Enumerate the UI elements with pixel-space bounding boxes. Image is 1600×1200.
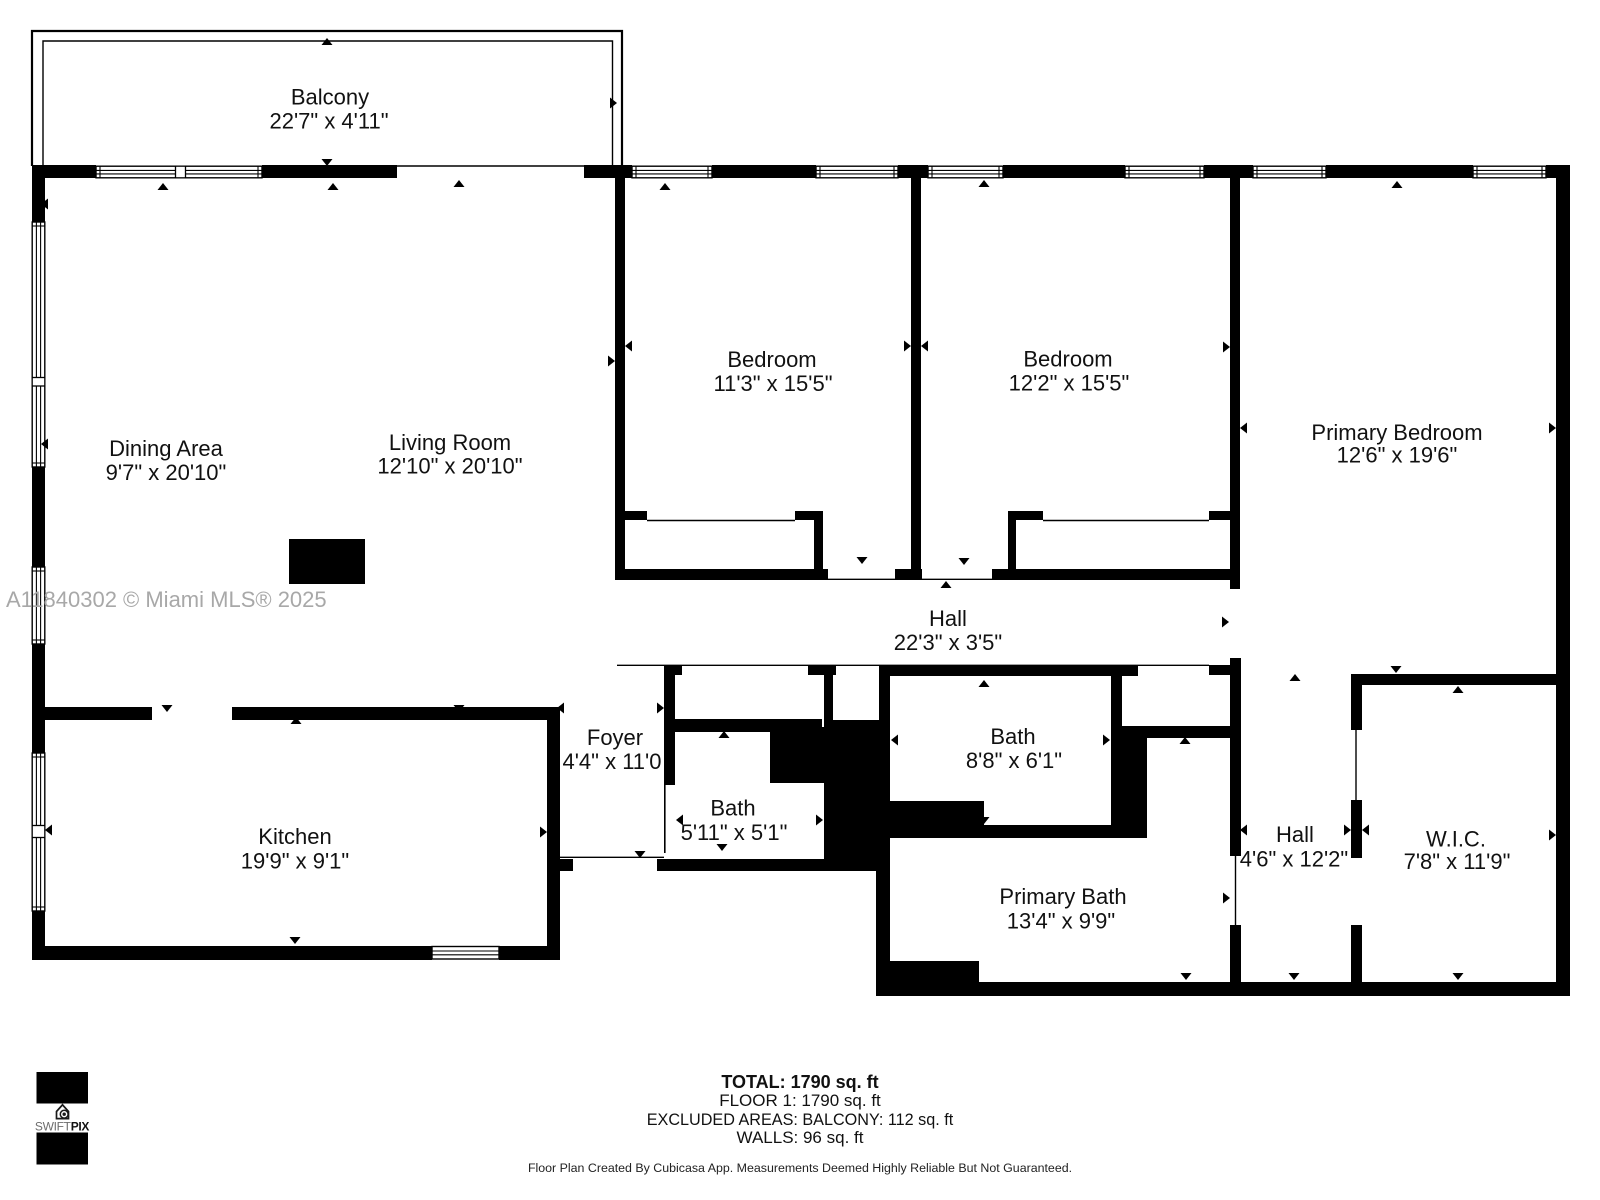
svg-text:TOTAL: 1790 sq. ft: TOTAL: 1790 sq. ft: [721, 1072, 878, 1092]
svg-text:Primary Bedroom: Primary Bedroom: [1311, 420, 1482, 445]
svg-text:Living Room: Living Room: [389, 430, 511, 455]
svg-text:Kitchen: Kitchen: [258, 824, 331, 849]
svg-text:13'4" x 9'9": 13'4" x 9'9": [1007, 909, 1115, 934]
svg-text:7'8" x 11'9": 7'8" x 11'9": [1404, 849, 1511, 874]
svg-text:4'4" x 11'0: 4'4" x 11'0: [563, 749, 662, 774]
svg-text:Foyer: Foyer: [587, 725, 643, 750]
svg-text:12'2" x 15'5": 12'2" x 15'5": [1009, 371, 1130, 396]
svg-text:Bedroom: Bedroom: [1023, 347, 1112, 372]
svg-text:5'11" x 5'1": 5'11" x 5'1": [681, 820, 788, 845]
svg-text:Dining Area: Dining Area: [109, 436, 224, 461]
svg-text:W.I.C.: W.I.C.: [1426, 827, 1486, 852]
svg-text:22'3" x 3'5": 22'3" x 3'5": [894, 630, 1002, 655]
svg-text:Floor Plan Created By Cubicasa: Floor Plan Created By Cubicasa App. Meas…: [528, 1161, 1072, 1175]
svg-text:A11840302 © Miami MLS® 2025: A11840302 © Miami MLS® 2025: [6, 587, 327, 612]
svg-text:Balcony: Balcony: [291, 85, 369, 110]
svg-text:FLOOR 1: 1790 sq. ft: FLOOR 1: 1790 sq. ft: [719, 1091, 881, 1110]
svg-text:19'9" x 9'1": 19'9" x 9'1": [241, 849, 349, 874]
svg-text:11'3" x 15'5": 11'3" x 15'5": [713, 371, 832, 396]
svg-text:8'8" x 6'1": 8'8" x 6'1": [966, 748, 1062, 773]
svg-text:22'7" x 4'11": 22'7" x 4'11": [269, 109, 388, 134]
svg-text:WALLS: 96 sq. ft: WALLS: 96 sq. ft: [737, 1128, 864, 1147]
svg-text:4'6" x 12'2": 4'6" x 12'2": [1240, 847, 1348, 872]
svg-text:12'6" x 19'6": 12'6" x 19'6": [1337, 443, 1458, 468]
svg-text:Hall: Hall: [929, 606, 967, 631]
svg-text:EXCLUDED AREAS: BALCONY: 112 s: EXCLUDED AREAS: BALCONY: 112 sq. ft: [647, 1111, 954, 1129]
svg-text:Hall: Hall: [1276, 822, 1314, 847]
svg-text:Bath: Bath: [990, 724, 1035, 749]
svg-text:SWIFTPIX: SWIFTPIX: [35, 1120, 90, 1134]
svg-text:12'10" x 20'10": 12'10" x 20'10": [377, 454, 522, 479]
svg-text:Bedroom: Bedroom: [727, 347, 816, 372]
svg-text:9'7" x 20'10": 9'7" x 20'10": [106, 460, 227, 485]
svg-text:Primary Bath: Primary Bath: [999, 884, 1126, 909]
svg-text:Bath: Bath: [710, 796, 755, 821]
